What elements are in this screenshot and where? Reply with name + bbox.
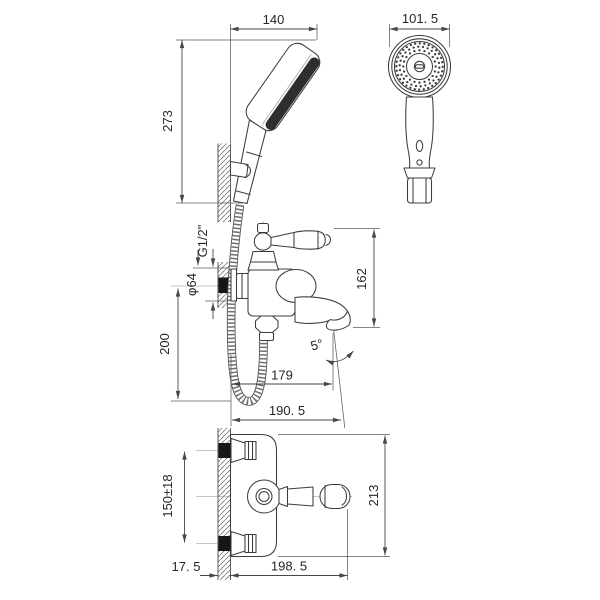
dim-label-198-5: 198. 5 (271, 559, 307, 574)
lever-hub-plan (248, 480, 281, 513)
escutcheon-top (231, 439, 245, 463)
dim-label-179: 179 (271, 368, 293, 383)
dim-label-5deg: 5° (309, 336, 325, 354)
inlet-anchor-bottom (219, 536, 231, 551)
escutcheon-edge (231, 269, 237, 301)
escutcheon-bottom (231, 532, 245, 556)
lever-ball-joint (254, 233, 271, 250)
cartridge-neck (251, 252, 277, 263)
wall-holder-bracket (231, 162, 249, 178)
handset-front-view (389, 36, 451, 204)
spout (295, 297, 350, 330)
lever-stem-cap (258, 224, 269, 233)
dim-label-190-5: 190. 5 (269, 403, 305, 418)
dim-label-thread: G1/2" (195, 224, 210, 257)
handset-grip-front (406, 97, 433, 168)
dim-label-17-5: 17. 5 (172, 559, 201, 574)
technical-drawing-canvas: 140 273 101. 5 G1/2" φ64 200 162 5° (0, 0, 600, 600)
dim-label-101-5: 101. 5 (402, 11, 438, 26)
lever-shaft-plan (288, 487, 314, 506)
dim-label-phi64: φ64 (184, 273, 199, 296)
spray-face-outer-ring (389, 36, 451, 98)
hose-union-nut (256, 316, 279, 333)
dim-label-140: 140 (263, 12, 285, 27)
dim-label-200: 200 (157, 333, 172, 355)
lever-handle (271, 231, 325, 249)
grip-flare (404, 168, 435, 178)
mixer-front-view (231, 224, 350, 341)
dim-label-213: 213 (366, 485, 381, 507)
hose-connector (260, 333, 274, 341)
shower-head-side (242, 39, 324, 135)
mixer-plan-view (196, 428, 352, 580)
dim-label-273: 273 (160, 110, 175, 132)
handset-side-view (218, 39, 324, 222)
dim-label-162: 162 (354, 268, 369, 290)
inlet-anchor-top (219, 443, 231, 458)
dim-label-150-18: 150±18 (160, 474, 175, 517)
wall-hatch-top (218, 144, 231, 223)
hose-nut-front (408, 178, 432, 203)
